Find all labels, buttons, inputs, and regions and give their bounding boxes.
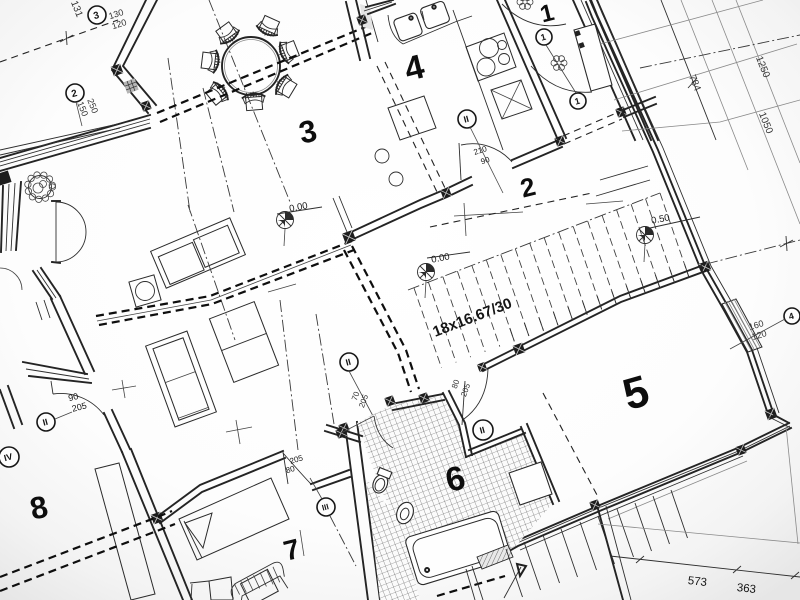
svg-text:573: 573 — [687, 575, 707, 589]
svg-text:363: 363 — [736, 582, 756, 596]
